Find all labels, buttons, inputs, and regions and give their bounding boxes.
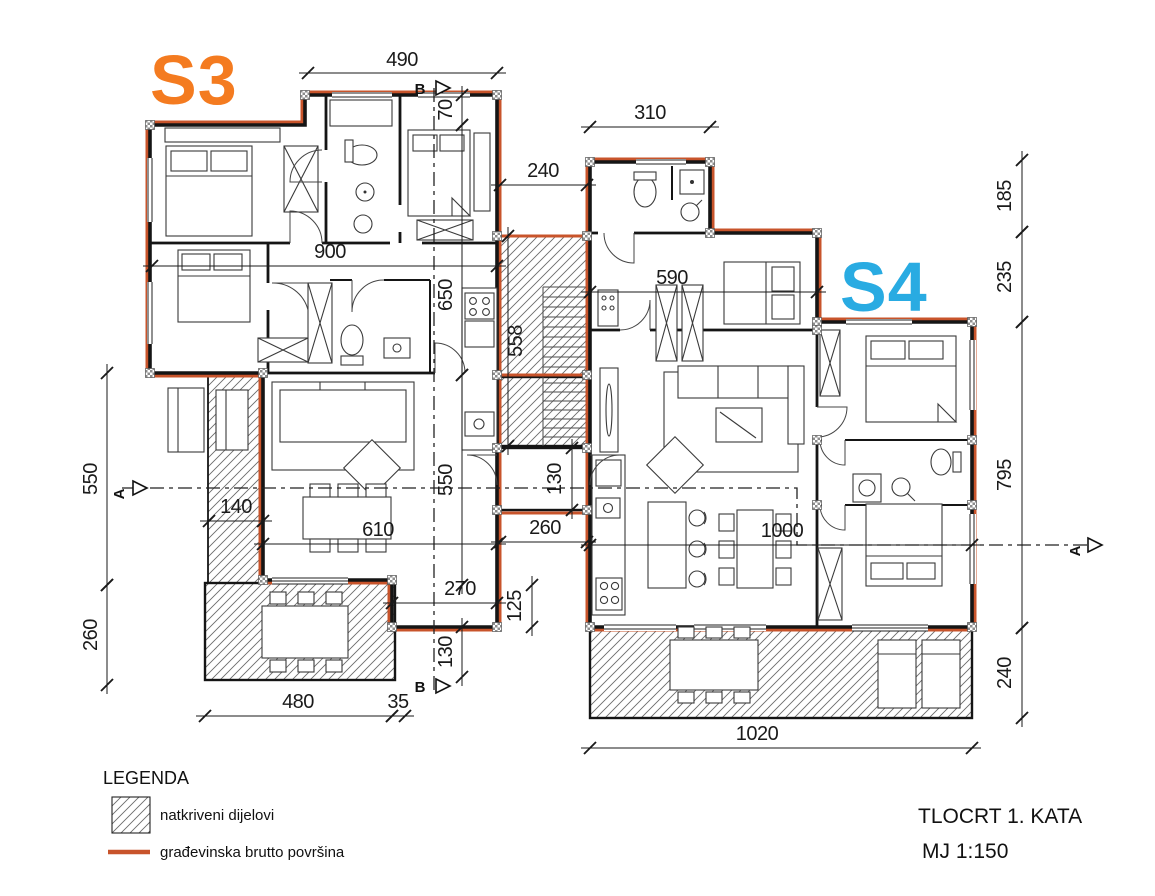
window <box>147 158 154 222</box>
section-arrow-a-right <box>1088 538 1102 552</box>
section-arrow-b-bottom <box>436 679 450 693</box>
washer <box>354 215 372 233</box>
dim-label-d270: 270 <box>444 578 476 600</box>
stove <box>465 293 494 319</box>
dimension-d125: 125 <box>504 576 538 636</box>
dim-label-d240_top: 240 <box>527 160 559 182</box>
dim-label-d35: 35 <box>387 691 409 713</box>
bar-stool <box>689 541 705 557</box>
drawing-scale: MJ 1:150 <box>922 840 1008 863</box>
dim-label-d1020: 1020 <box>736 723 779 745</box>
dim-label-d240_right: 240 <box>994 657 1016 689</box>
window <box>332 92 392 99</box>
dim-label-d650: 650 <box>435 279 457 311</box>
dim-label-d140: 140 <box>220 496 252 518</box>
dim-label-d795: 795 <box>994 459 1016 491</box>
dim-label-d550_mid: 550 <box>435 464 457 496</box>
dim-label-d235: 235 <box>994 261 1016 293</box>
sun-lounger <box>878 640 916 708</box>
dimension-d270: 270 <box>383 578 506 609</box>
toilet <box>341 325 363 355</box>
legend: LEGENDA natkriveni dijelovi građevinska … <box>103 768 345 861</box>
sofa <box>678 366 800 398</box>
kitchen-sink <box>465 412 494 436</box>
dim-label-d70: 70 <box>435 99 457 121</box>
toilet <box>931 449 951 475</box>
dim-label-d130_vest: 130 <box>544 463 566 495</box>
dim-label-d185: 185 <box>994 180 1016 212</box>
dimension-d480: 480 <box>196 691 401 722</box>
floor-plan-drawing: B B A A 49024031090059014061026027010004… <box>0 0 1155 896</box>
dimension-d240_right: 240 <box>994 619 1028 727</box>
window <box>852 624 928 631</box>
sofa-chaise <box>788 366 804 444</box>
legend-heading: LEGENDA <box>103 768 189 788</box>
dimension-d550_left: 550 <box>80 364 113 594</box>
section-label-a-left: A <box>111 488 128 499</box>
dim-label-d558: 558 <box>505 325 527 357</box>
title-block: TLOCRT 1. KATA MJ 1:150 <box>918 805 1082 863</box>
dim-label-d125: 125 <box>504 590 526 622</box>
dimension-d490: 490 <box>299 49 506 79</box>
dim-label-d550_left: 550 <box>80 463 102 495</box>
section-label-a-right: A <box>1067 545 1084 556</box>
dimension-d235: 235 <box>994 223 1028 331</box>
window <box>636 159 686 166</box>
armchair <box>216 390 248 450</box>
dimension-d185: 185 <box>994 151 1028 241</box>
dimension-d1020: 1020 <box>581 723 981 754</box>
terrace-table <box>670 640 758 690</box>
dim-label-d260_mid: 260 <box>529 517 561 539</box>
dim-label-d490: 490 <box>386 49 418 71</box>
toilet <box>634 177 656 207</box>
cabinet <box>598 290 618 326</box>
armchair <box>647 437 704 494</box>
sun-lounger <box>922 640 960 708</box>
terrace-table <box>262 606 348 658</box>
unit-label-s4: S4 <box>840 248 928 326</box>
tv-bench <box>600 368 618 452</box>
dim-label-d260_left: 260 <box>80 619 102 651</box>
floor-plan-page: B B A A 49024031090059014061026027010004… <box>0 0 1155 896</box>
dimension-d310: 310 <box>581 102 719 133</box>
bar-stool <box>689 510 705 526</box>
kitchen-sink <box>596 498 620 518</box>
dim-label-d310: 310 <box>634 102 666 124</box>
bar-stool <box>689 571 705 587</box>
legend-line-label: građevinska brutto površina <box>160 844 345 861</box>
section-arrow-a-left <box>133 481 147 495</box>
dim-label-d480: 480 <box>282 691 314 713</box>
sofa <box>272 382 414 470</box>
bathtub <box>330 100 392 126</box>
dimension-d795: 795 <box>994 313 1028 637</box>
dim-label-d130_bottom: 130 <box>435 636 457 668</box>
window <box>604 624 676 631</box>
dim-label-d590: 590 <box>656 267 688 289</box>
fridge <box>596 460 621 486</box>
dim-label-d900: 900 <box>314 241 346 263</box>
dimension-d260_left: 260 <box>80 576 113 694</box>
armchair <box>168 388 204 452</box>
legend-hatch-label: natkriveni dijelovi <box>160 807 274 824</box>
dim-label-d610: 610 <box>362 519 394 541</box>
shelf <box>474 133 490 211</box>
dimension-d260_mid: 260 <box>491 517 596 548</box>
dim-label-d1000: 1000 <box>761 520 804 542</box>
drawing-title: TLOCRT 1. KATA <box>918 805 1082 828</box>
shower <box>853 474 881 502</box>
dimension-d240_top: 240 <box>491 160 596 191</box>
window <box>694 624 766 631</box>
section-label-b-top: B <box>415 81 426 98</box>
window <box>272 577 348 584</box>
dimension-d35: 35 <box>383 691 414 722</box>
unit-label-s3: S3 <box>150 41 238 119</box>
legend-hatch-swatch <box>112 797 150 833</box>
window <box>969 514 976 584</box>
window <box>969 340 976 410</box>
closet <box>165 128 280 142</box>
window <box>147 282 154 344</box>
section-label-b-bottom: B <box>415 679 426 696</box>
stove <box>596 578 622 610</box>
